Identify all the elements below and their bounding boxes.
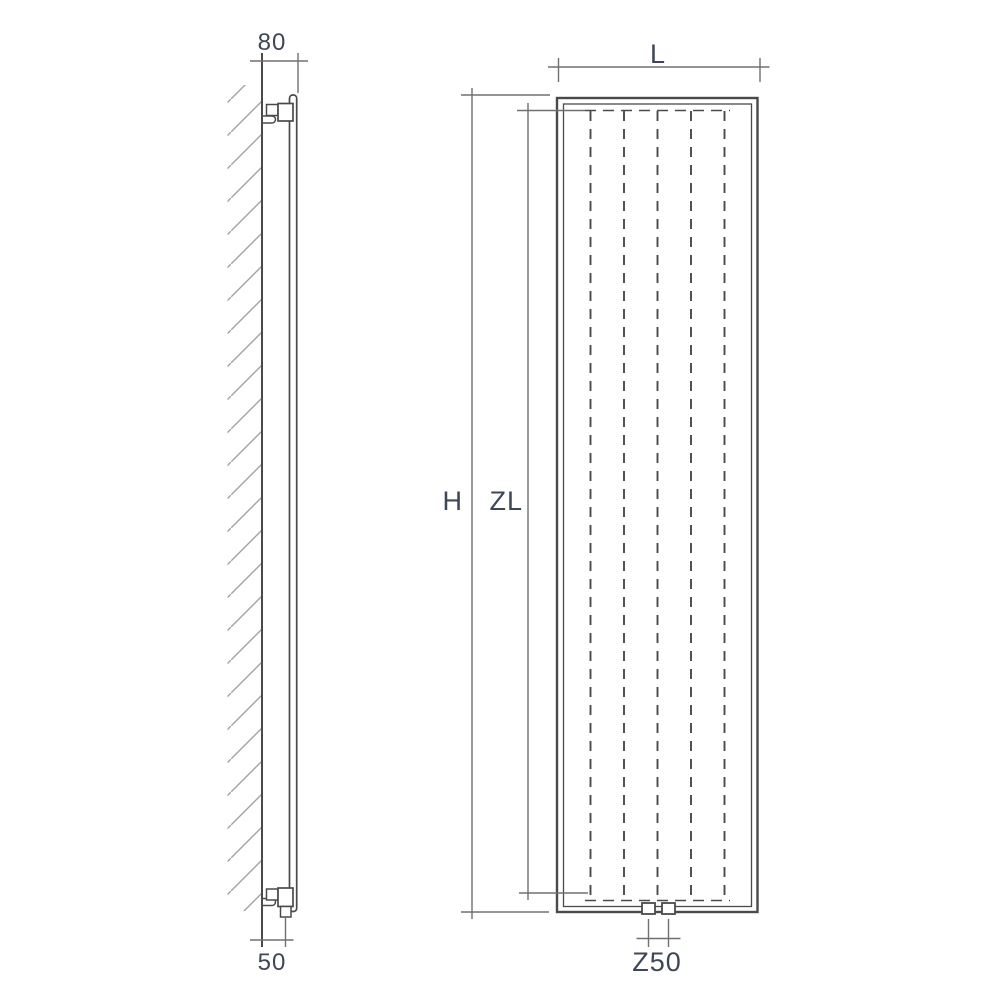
radiator-panel-profile — [290, 95, 297, 912]
convector-hidden-outline — [585, 111, 730, 901]
drawing-canvas: 80 50 L — [0, 0, 1000, 1000]
dimension-label-ZL: ZL — [489, 486, 523, 516]
dimension-pipe-offset-50: 50 — [250, 940, 294, 976]
front-view: L H ZL Z50 — [443, 39, 770, 977]
pipe-connection — [281, 907, 292, 918]
dimension-convector-height-ZL: ZL — [489, 103, 588, 900]
dimension-label-L: L — [650, 39, 666, 69]
side-view: 80 50 — [228, 29, 309, 976]
pipe-connector-right — [662, 903, 675, 914]
dimension-width-L: L — [548, 39, 770, 82]
bracket-clamp — [267, 105, 279, 116]
dimension-label-50: 50 — [258, 949, 287, 976]
dimension-label-Z50: Z50 — [632, 947, 682, 977]
bracket-wall-tab — [262, 116, 276, 123]
bottom-mounting-bracket — [262, 888, 293, 947]
bracket-body — [278, 888, 293, 907]
bracket-body — [278, 104, 293, 122]
dimension-label-80: 80 — [258, 29, 287, 56]
dimension-pipe-centres-Z50: Z50 — [632, 919, 682, 977]
wall-hatch — [228, 85, 263, 911]
dimension-wall-offset-80: 80 — [250, 29, 308, 93]
bracket-clamp — [267, 889, 279, 900]
top-mounting-bracket — [262, 104, 293, 124]
pipe-connector-left — [642, 903, 655, 914]
radiator-technical-drawing: 80 50 L — [0, 0, 1000, 1000]
dimension-label-H: H — [443, 486, 464, 516]
